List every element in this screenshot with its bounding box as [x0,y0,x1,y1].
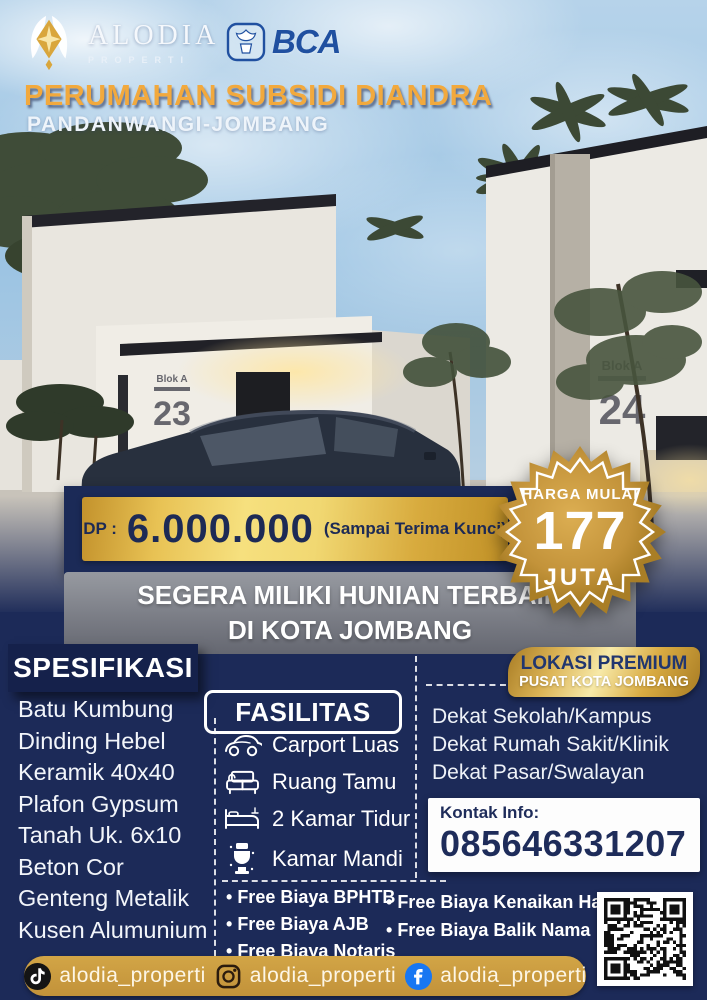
property-flyer: Blok A 23 Blok A 24 [0,0,707,1000]
spec-item: Plafon Gypsum [18,789,207,821]
perk-item: Free Biaya Kenaikan Hak [386,888,611,916]
bca-logo-icon [226,22,266,62]
location-badge-subtitle: PUSAT KOTA JOMBANG [519,674,689,691]
svg-text:23: 23 [153,395,191,433]
location-item: Dekat Pasar/Swalayan [432,759,669,787]
spec-item: Kusen Alumunium [18,915,207,947]
bca-logo-text: BCA [272,23,341,61]
premium-location-badge: LOKASI PREMIUM PUSAT KOTA JOMBANG [508,647,700,697]
qr-code [597,892,693,986]
flyer-title: PERUMAHAN SUBSIDI DIANDRA [24,80,492,113]
sofa-icon [222,765,262,799]
instagram-handle[interactable]: alodia_properti [250,964,396,988]
price-badge: HARGA MULAI 177 JUTA [492,438,668,624]
perks-list-right: Free Biaya Kenaikan Hak Free Biaya Balik… [386,888,611,944]
specifications-list: Batu Kumbung Dinding Hebel Keramik 40x40… [18,694,207,946]
brand-subtitle: PROPERTI [88,55,219,65]
bed-icon [222,802,262,836]
tiktok-handle[interactable]: alodia_properti [59,964,205,988]
dp-value: 6.000.000 [127,507,314,552]
facility-label: 2 Kamar Tidur [272,806,410,832]
contact-phone-number: 085646331207 [440,823,690,865]
price-badge-unit: JUTA [492,564,668,592]
perks-divider-dashed [222,880,446,882]
perks-list-left: Free Biaya BPHTB Free Biaya AJB Free Bia… [226,884,395,965]
toilet-icon [222,842,262,876]
perk-item: Free Biaya Balik Nama [386,916,611,944]
facility-bedrooms: 2 Kamar Tidur [222,800,422,838]
car-icon [222,728,262,762]
location-list: Dekat Sekolah/Kampus Dekat Rumah Sakit/K… [432,703,669,787]
tiktok-link[interactable]: alodia_properti [23,962,205,991]
contact-label: Kontak Info: [440,803,690,823]
alodia-logo-icon [20,12,78,72]
spec-item: Tanah Uk. 6x10 [18,820,207,852]
bca-logo: BCA [226,22,341,62]
facilities-divider-dashed [214,718,216,956]
price-badge-value: 177 [492,500,668,562]
location-item: Dekat Sekolah/Kampus [432,703,669,731]
svg-text:Blok A: Blok A [156,374,187,385]
dp-banner: DP : 6.000.000 (Sampai Terima Kunci) [82,497,508,561]
spec-item: Batu Kumbung [18,694,207,726]
location-badge-title: LOKASI PREMIUM [521,654,688,674]
facility-label: Ruang Tamu [272,769,396,795]
facebook-link[interactable]: alodia_properti [404,962,586,991]
facility-bathroom: Kamar Mandi [222,840,422,878]
instagram-link[interactable]: alodia_properti [214,962,396,991]
dp-label: DP : [83,519,117,539]
facebook-handle[interactable]: alodia_properti [440,964,586,988]
spec-item: Beton Cor [18,852,207,884]
specifications-heading: SPESIFIKASI [8,644,198,692]
qr-code-pattern [603,898,687,980]
perk-item: Free Biaya AJB [226,911,395,938]
location-badge-dashes [426,684,506,686]
instagram-icon [214,962,243,991]
tagline-line2: DI KOTA JOMBANG [228,613,472,648]
location-item: Dekat Rumah Sakit/Klinik [432,731,669,759]
social-bar: alodia_properti alodia_properti alodia_p… [24,956,586,996]
spec-item: Dinding Hebel [18,726,207,758]
facility-living-room: Ruang Tamu [222,763,422,801]
spec-item: Genteng Metalik [18,883,207,915]
dp-note: (Sampai Terima Kunci) [324,519,507,539]
facility-label: Carport Luas [272,732,399,758]
facebook-icon [404,962,433,991]
flyer-subtitle: PANDANWANGI-JOMBANG [27,113,329,137]
perk-item: Free Biaya BPHTB [226,884,395,911]
contact-card: Kontak Info: 085646331207 [428,798,700,872]
brand-name: ALODIA [88,20,219,52]
alodia-logo: ALODIA PROPERTI [20,12,219,72]
facility-label: Kamar Mandi [272,846,403,872]
facility-carport: Carport Luas [222,726,422,764]
tiktok-icon [23,962,52,991]
spec-item: Keramik 40x40 [18,757,207,789]
